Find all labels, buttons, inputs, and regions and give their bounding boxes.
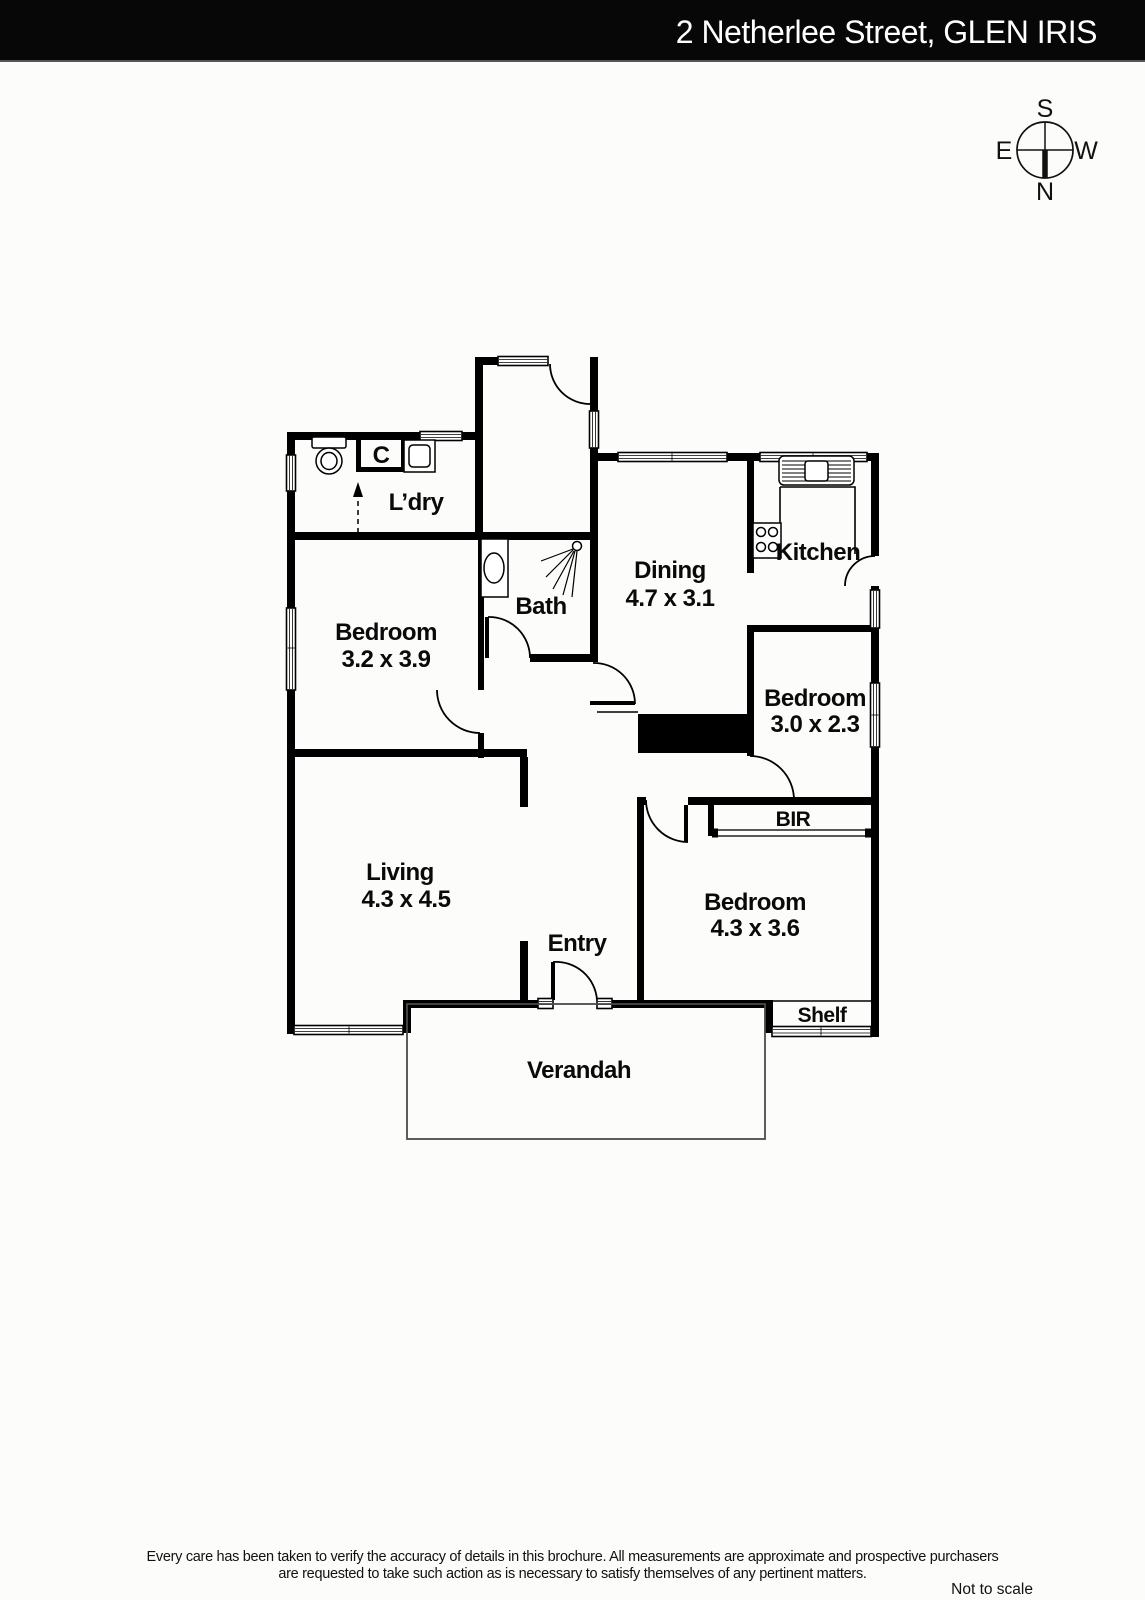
room-label-verandah: Verandah [527,1057,631,1084]
disclaimer-line-2: are requested to take such action as is … [0,1566,1145,1582]
compass-west-label: W [1074,137,1098,165]
room-label-bir: BIR [776,808,811,831]
room-dims-living: 4.3 x 4.5 [362,886,451,913]
compass-south-label: S [1037,95,1054,123]
room-label-kitchen: Kitchen [776,539,861,566]
window [618,453,727,462]
compass-east-label: E [996,137,1013,165]
back-door-arc [550,364,590,404]
entry-door-arc [553,962,597,1000]
room-dims-bedroom-middle: 3.0 x 2.3 [771,711,860,738]
brochure-page: 2 Netherlee Street, GLEN IRIS [0,0,1145,1600]
room-label-entry: Entry [548,930,608,957]
window [420,432,462,441]
room-label-bath: Bath [515,593,566,620]
room-dims-dining: 4.7 x 3.1 [626,585,715,612]
room-label-bedroom-front: Bedroom [704,889,806,916]
solid-block [638,714,750,753]
room-label-laundry: L’dry [389,489,445,516]
bedroom-left-door-arc [437,690,480,733]
window [287,608,296,690]
compass-north-label: N [1036,178,1054,206]
room-dims-bedroom-front: 4.3 x 3.6 [711,915,800,942]
laundry-trough-icon [404,440,435,472]
shower-icon [541,542,582,598]
room-label-shelf: Shelf [798,1004,848,1027]
window [772,1027,871,1037]
bath-door-arc [488,617,530,658]
room-label-living: Living [366,859,434,886]
room-dims-bedroom-left: 3.2 x 3.9 [342,646,431,673]
room-label-bedroom-middle: Bedroom [764,685,866,712]
bedroom-middle-door-arc [750,756,794,800]
room-label-dining: Dining [634,557,706,584]
toilet-icon [312,437,346,474]
kitchen-sink-icon [779,456,854,485]
floorplan-drawing: S N E W L’dry C Bath Dining 4.7 x 3.1 Ki… [0,0,1145,1600]
window [871,590,880,628]
window [287,455,296,491]
dining-door-arc [593,663,635,704]
room-label-bedroom-left: Bedroom [335,619,437,646]
window [871,683,880,747]
bedroom-front-door-arc [646,800,688,842]
disclaimer-line-1: Every care has been taken to verify the … [0,1549,1145,1565]
compass: S N E W [996,95,1099,206]
window [498,357,548,366]
direction-arrow [353,482,363,533]
bath-basin-icon [481,539,508,597]
window [590,411,599,448]
scale-note: Not to scale [951,1581,1033,1599]
window [294,1026,403,1035]
room-label-cupboard: C [373,442,390,469]
